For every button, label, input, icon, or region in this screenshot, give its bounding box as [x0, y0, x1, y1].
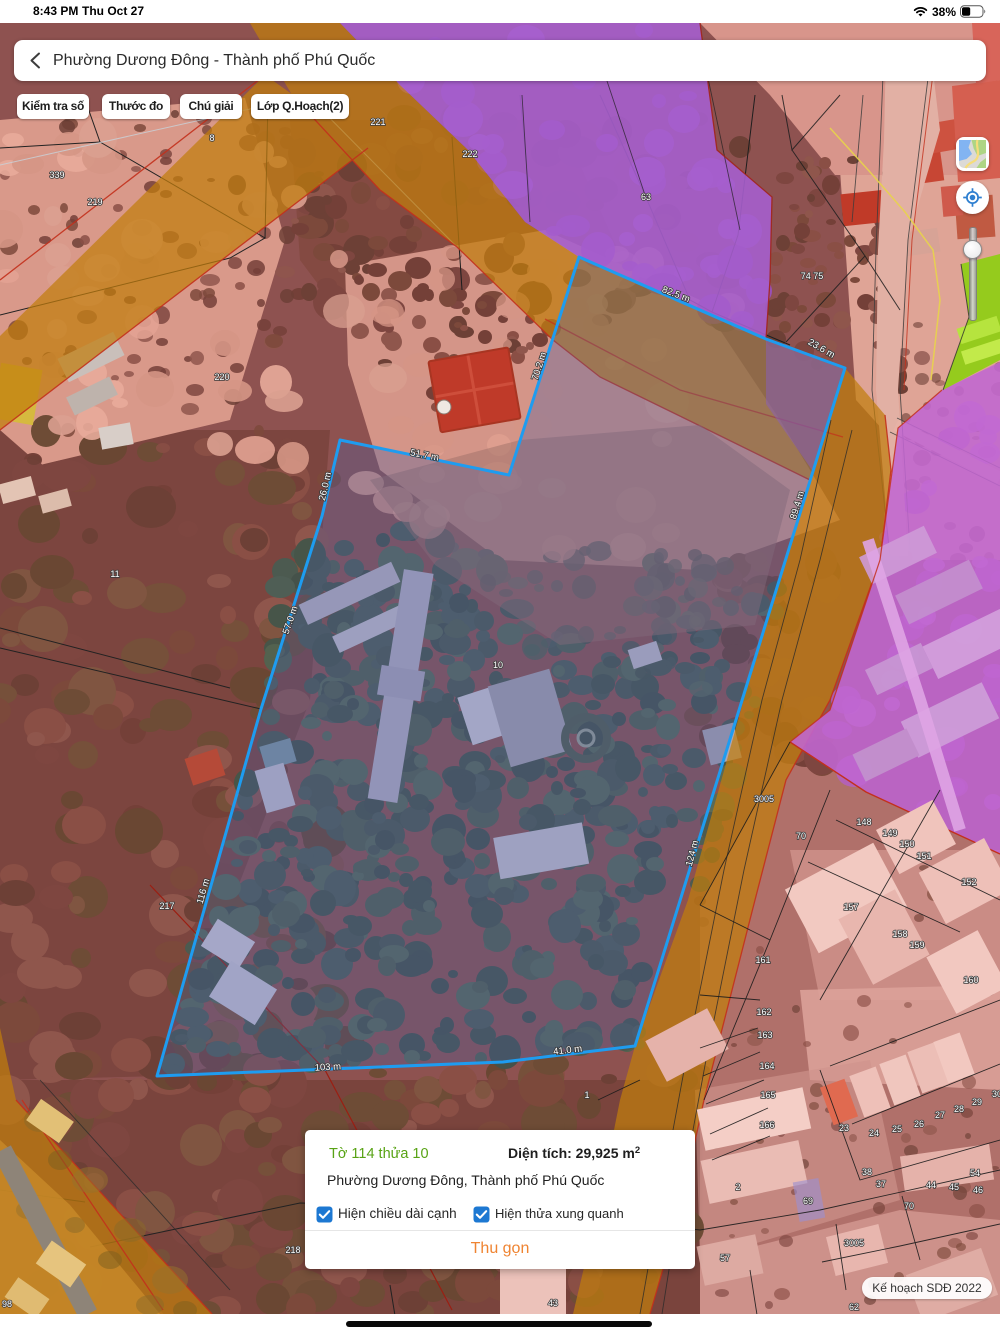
- svg-text:23: 23: [839, 1123, 849, 1133]
- svg-text:28: 28: [954, 1104, 964, 1114]
- svg-text:103 m: 103 m: [314, 1061, 341, 1073]
- svg-text:152: 152: [961, 877, 976, 887]
- svg-text:29: 29: [972, 1097, 982, 1107]
- svg-text:150: 150: [899, 839, 914, 849]
- svg-text:70: 70: [796, 831, 806, 841]
- svg-text:70: 70: [904, 1201, 914, 1211]
- svg-text:166: 166: [759, 1120, 774, 1130]
- svg-text:220: 220: [214, 372, 229, 382]
- svg-text:149: 149: [882, 828, 897, 838]
- svg-text:1: 1: [584, 1090, 589, 1100]
- svg-text:221: 221: [370, 117, 385, 127]
- svg-text:164: 164: [759, 1061, 774, 1071]
- svg-text:2: 2: [735, 1182, 740, 1192]
- svg-text:222: 222: [462, 149, 477, 159]
- svg-text:46: 46: [973, 1185, 983, 1195]
- svg-text:158: 158: [892, 929, 907, 939]
- svg-text:3005: 3005: [844, 1238, 864, 1248]
- svg-text:74 75: 74 75: [801, 271, 824, 281]
- svg-text:157: 157: [843, 902, 858, 912]
- svg-text:27: 27: [935, 1110, 945, 1120]
- svg-text:217: 217: [159, 901, 174, 911]
- svg-text:43: 43: [548, 1298, 558, 1308]
- svg-text:219: 219: [87, 197, 102, 207]
- svg-text:30: 30: [992, 1089, 1000, 1099]
- svg-text:62: 62: [849, 1302, 859, 1312]
- svg-text:160: 160: [963, 975, 978, 985]
- svg-text:25: 25: [892, 1124, 902, 1134]
- svg-text:162: 162: [756, 1007, 771, 1017]
- svg-text:24: 24: [869, 1128, 879, 1138]
- svg-text:38: 38: [862, 1167, 872, 1177]
- svg-text:37: 37: [876, 1179, 886, 1189]
- svg-text:44: 44: [926, 1180, 936, 1190]
- svg-text:69: 69: [803, 1196, 813, 1206]
- svg-text:45: 45: [949, 1182, 959, 1192]
- svg-text:26: 26: [914, 1119, 924, 1129]
- svg-text:8: 8: [209, 133, 214, 143]
- svg-text:54: 54: [970, 1168, 980, 1178]
- svg-text:3005: 3005: [754, 794, 774, 804]
- svg-text:98: 98: [2, 1299, 12, 1309]
- svg-text:63: 63: [641, 192, 651, 202]
- svg-text:165: 165: [760, 1090, 775, 1100]
- svg-text:151: 151: [916, 851, 931, 861]
- svg-text:159: 159: [909, 940, 924, 950]
- svg-text:148: 148: [856, 817, 871, 827]
- svg-text:57: 57: [720, 1253, 730, 1263]
- svg-text:11: 11: [110, 569, 119, 579]
- svg-text:218: 218: [285, 1245, 300, 1255]
- svg-text:161: 161: [755, 955, 770, 965]
- svg-text:10: 10: [493, 660, 503, 670]
- svg-text:339: 339: [49, 170, 64, 180]
- svg-text:163: 163: [757, 1030, 772, 1040]
